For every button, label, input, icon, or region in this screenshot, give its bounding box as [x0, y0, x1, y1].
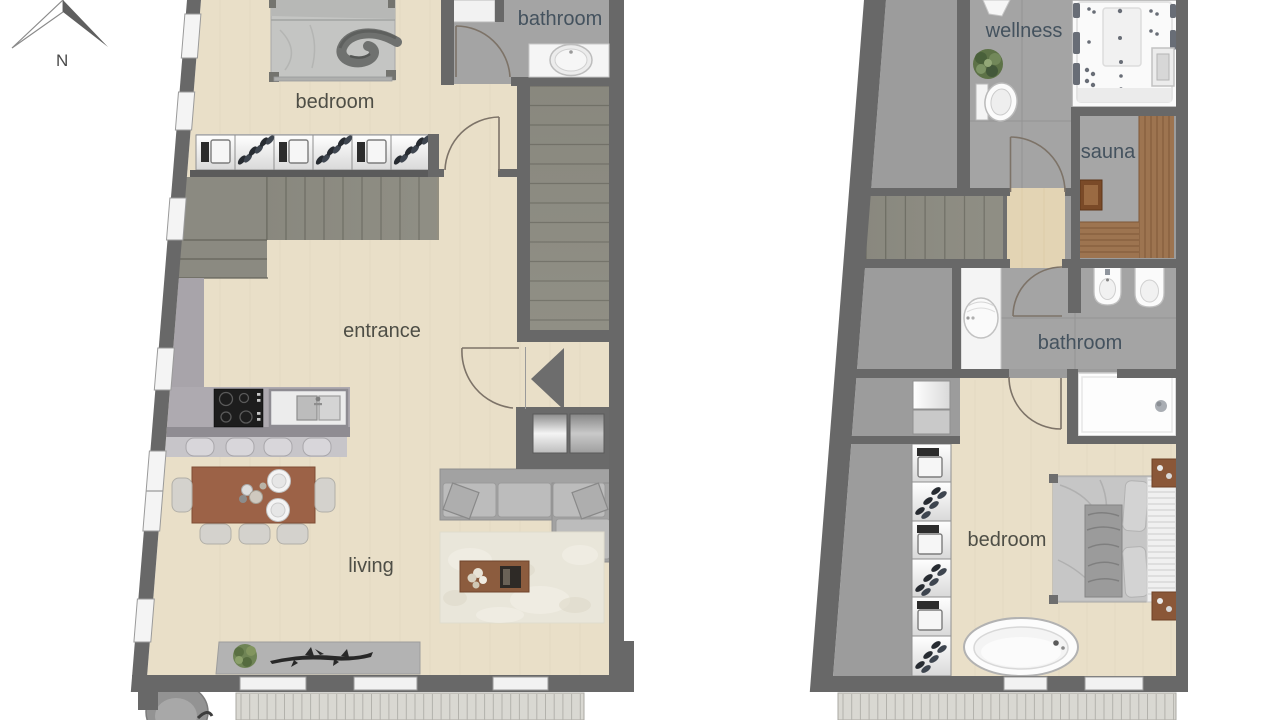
- svg-text:wellness: wellness: [985, 20, 1063, 42]
- svg-text:bedroom: bedroom: [968, 529, 1047, 551]
- svg-text:N: N: [56, 51, 68, 70]
- svg-text:living: living: [348, 555, 394, 577]
- svg-text:sauna: sauna: [1081, 141, 1136, 163]
- svg-text:bathroom: bathroom: [1038, 332, 1123, 354]
- svg-text:bedroom: bedroom: [296, 91, 375, 113]
- svg-text:bathroom: bathroom: [518, 8, 603, 30]
- svg-text:entrance: entrance: [343, 320, 421, 342]
